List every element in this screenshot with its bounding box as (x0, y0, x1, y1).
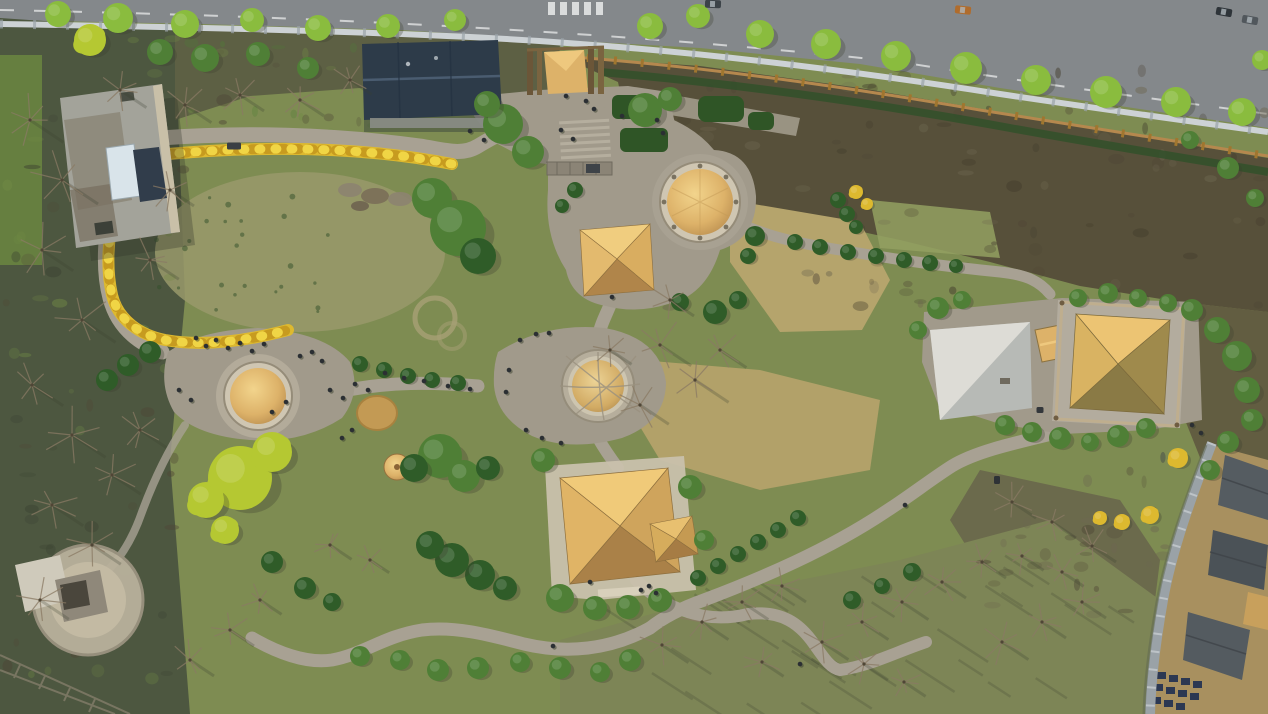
ground-speckle (837, 148, 847, 153)
person-dot (584, 99, 589, 104)
rooftop-unit (94, 221, 113, 235)
bare-trunk (820, 640, 823, 643)
ground-speckle (919, 124, 929, 133)
exhibition-hall-dark-roof (362, 40, 504, 132)
ground-speckle (1030, 227, 1037, 239)
ground-speckle (48, 115, 57, 123)
tree-highlight (516, 140, 530, 154)
person-dot (328, 388, 333, 393)
ground-speckle (899, 288, 913, 296)
tree-highlight (216, 454, 245, 483)
tree-highlight (815, 33, 829, 47)
tree-highlight (1203, 463, 1212, 472)
bare-trunk (40, 248, 43, 251)
person-dot (1199, 431, 1204, 436)
ground-speckle (158, 611, 167, 619)
tree-highlight (426, 374, 433, 381)
ground-speckle (91, 664, 104, 677)
bare-trunk (900, 600, 903, 603)
tree-highlight (452, 464, 466, 478)
person-dot (547, 331, 552, 336)
weed-dot (225, 202, 231, 208)
tree-highlight (378, 364, 385, 371)
ground-speckle (962, 159, 976, 166)
tree-highlight (1237, 380, 1249, 392)
ground-speckle (1111, 543, 1117, 554)
bare-trunk (860, 620, 863, 623)
weed-dot (239, 219, 243, 223)
person-dot (262, 342, 267, 347)
person-dot (353, 382, 358, 387)
bare-trunk (608, 348, 611, 351)
bare-branch (330, 545, 331, 558)
ground-speckle (27, 137, 44, 142)
person-dot (610, 295, 615, 300)
tree-highlight (954, 56, 968, 70)
ground-speckle (19, 444, 31, 449)
person-dot (482, 138, 487, 143)
ground-speckle (290, 110, 297, 119)
ground-speckle (1015, 534, 1026, 539)
tree-highlight (452, 377, 459, 384)
person-dot (540, 436, 545, 441)
person-dot (639, 588, 644, 593)
bare-trunk (188, 658, 191, 661)
person-dot (238, 341, 243, 346)
ground-speckle (11, 251, 20, 262)
ground-speckle (1032, 143, 1039, 152)
tree-highlight (789, 236, 796, 243)
ground-speckle (302, 114, 309, 123)
tree-highlight (697, 533, 706, 542)
ground-speckle (25, 514, 39, 524)
tree-highlight (1071, 291, 1079, 299)
bare-trunk (1040, 620, 1043, 623)
weed-dot (157, 285, 161, 289)
person-dot (310, 350, 315, 355)
tree-highlight (107, 7, 121, 21)
tree-highlight (706, 303, 717, 314)
tree-highlight (772, 524, 779, 531)
bare-trunk (638, 403, 641, 406)
tree-highlight (195, 48, 208, 61)
ground-speckle (1086, 223, 1094, 227)
weed-dot (313, 281, 316, 284)
ground-speckle (356, 117, 361, 127)
ground-speckle (28, 671, 35, 678)
bare-trunk (660, 643, 663, 646)
ground-speckle (1083, 475, 1092, 487)
ground-speckle (1135, 87, 1147, 94)
person-dot (468, 129, 473, 134)
ground-speckle (991, 241, 997, 245)
bare-trunk (168, 188, 171, 191)
ground-speckle (1146, 561, 1153, 567)
ground-speckle (128, 37, 139, 43)
tree-highlight (300, 60, 310, 70)
bare-trunk (1080, 600, 1083, 603)
bare-trunk (183, 103, 186, 106)
person-dot (340, 436, 345, 441)
ground-speckle (813, 273, 820, 284)
tree-highlight (175, 13, 188, 26)
bare-branch (315, 544, 330, 545)
person-dot (270, 410, 275, 415)
ground-speckle (2, 180, 12, 191)
bare-trunk (1020, 554, 1023, 557)
person-dot (524, 428, 529, 433)
tree-highlight (1184, 302, 1194, 312)
ground-speckle (32, 295, 48, 301)
tree-highlight (48, 4, 60, 16)
person-dot (571, 137, 576, 142)
tree-highlight (1171, 451, 1180, 460)
tree-highlight (689, 7, 700, 18)
tree-highlight (470, 660, 480, 670)
ground-speckle (1118, 609, 1133, 614)
tree-highlight (1226, 345, 1240, 359)
ground-speckle (1233, 217, 1241, 223)
person-dot (320, 359, 325, 364)
tree-highlight (692, 572, 699, 579)
weed-dot (219, 283, 224, 288)
tree-highlight (496, 579, 507, 590)
tree-highlight (640, 16, 652, 28)
person-dot (341, 396, 346, 401)
stone-platform-east (930, 322, 1032, 420)
tree-highlight (420, 535, 433, 548)
tree-highlight (1220, 434, 1230, 444)
ground-speckle (878, 220, 891, 225)
ground-speckle (272, 63, 279, 68)
ground-speckle (1094, 586, 1099, 592)
tree-highlight (832, 194, 839, 201)
person-dot (366, 388, 371, 393)
ground-speckle (19, 472, 36, 477)
ground-speckle (903, 281, 912, 287)
ground-speckle (862, 84, 876, 89)
tree-highlight (750, 24, 763, 37)
haystack-mound (357, 396, 397, 430)
tree-highlight (1025, 425, 1034, 434)
ground-speckle (1040, 548, 1051, 560)
bare-trunk (50, 503, 53, 506)
ground-speckle (1000, 539, 1006, 547)
person-dot (177, 388, 182, 393)
ground-speckle (1133, 228, 1149, 237)
ground-speckle (1169, 160, 1177, 167)
person-dot (446, 384, 451, 389)
ground-speckle (866, 121, 873, 129)
tree-highlight (998, 418, 1007, 427)
car (705, 0, 721, 8)
ground-speckle (826, 271, 833, 277)
car-windshield (960, 7, 966, 13)
tree-highlight (1207, 320, 1219, 332)
ground-speckle (147, 69, 162, 78)
person-dot (507, 368, 512, 373)
ground-speckle (937, 122, 952, 127)
tree-highlight (325, 595, 333, 603)
visitor-building-flat-roof (60, 84, 195, 261)
tree-highlight (1095, 513, 1101, 519)
tree-highlight (1025, 69, 1039, 83)
tree-highlight (586, 599, 597, 610)
park-aerial-view (0, 0, 1268, 714)
ground-speckle (1018, 220, 1027, 227)
bare-trunk (368, 558, 371, 561)
ground-speckle (219, 120, 227, 125)
bare-trunk (118, 88, 121, 91)
tree-highlight (712, 560, 719, 567)
person-dot (620, 114, 625, 119)
weed-dot (289, 194, 295, 200)
tree-highlight (249, 45, 260, 56)
ground-speckle (904, 208, 918, 217)
tree-highlight (792, 512, 799, 519)
weed-dot (288, 263, 294, 269)
central-house-annex (650, 516, 698, 562)
bare-branch (230, 630, 231, 645)
ground-speckle (832, 140, 841, 145)
car (955, 5, 972, 15)
tree-highlight (120, 357, 130, 367)
ground-speckle (1080, 552, 1092, 556)
ground-speckle (1055, 67, 1061, 78)
bare-trunk (298, 98, 301, 101)
tree-highlight (1165, 91, 1179, 105)
bare-trunk (1010, 500, 1013, 503)
person-dot (518, 338, 523, 343)
bare-trunk (718, 348, 721, 351)
bare-trunk (38, 598, 41, 601)
bare-trunk (258, 598, 261, 601)
ground-speckle (801, 269, 814, 276)
ground-speckle (128, 502, 137, 510)
tree-highlight (78, 28, 92, 42)
ground-speckle (1128, 213, 1135, 217)
bare-trunk (658, 343, 661, 346)
weed-dot (234, 243, 238, 247)
ground-speckle (220, 41, 225, 47)
ground-speckle (1006, 180, 1022, 192)
bare-trunk (228, 628, 231, 631)
person-dot (214, 338, 219, 343)
bare-trunk (60, 178, 63, 181)
tree-highlight (1116, 516, 1123, 523)
tree-highlight (870, 250, 877, 257)
tree-highlight (681, 478, 692, 489)
weed-dot (315, 305, 320, 310)
person-dot (534, 332, 539, 337)
bare-trunk (902, 680, 905, 683)
person-dot (559, 441, 564, 446)
person-dot (903, 503, 908, 508)
ground-speckle (271, 45, 285, 49)
ground-speckle (24, 165, 41, 169)
tree-highlight (569, 184, 576, 191)
tree-highlight (215, 520, 228, 533)
person-dot (654, 591, 659, 596)
person-dot (564, 94, 569, 99)
person-dot (1190, 423, 1195, 428)
ground-speckle (14, 639, 20, 647)
tree-highlight (841, 208, 848, 215)
person-dot (592, 107, 597, 112)
bare-trunk (693, 378, 696, 381)
tree-highlight (1101, 286, 1110, 295)
weed-dot (243, 284, 247, 288)
tree-highlight (851, 222, 857, 228)
ground-speckle (1126, 467, 1133, 476)
tree-highlight (930, 300, 940, 310)
ground-speckle (1023, 517, 1032, 528)
ground-speckle (46, 544, 56, 555)
tree-highlight (951, 261, 957, 267)
tree-highlight (243, 11, 254, 22)
ground-speckle (86, 399, 93, 411)
bare-trunk (30, 383, 33, 386)
ground-speckle (1253, 176, 1267, 182)
bare-trunk (700, 620, 703, 623)
ground-speckle (1141, 475, 1146, 488)
person-dot (468, 387, 473, 392)
tree-highlight (1220, 160, 1230, 170)
ground-speckle (145, 673, 158, 685)
tree-highlight (437, 207, 462, 232)
pergola-bench (547, 162, 612, 175)
person-dot (402, 376, 407, 381)
tree-highlight (354, 358, 361, 365)
tree-highlight (845, 593, 853, 601)
ground-speckle (918, 300, 924, 308)
tree-highlight (661, 90, 672, 101)
tree-highlight (552, 660, 562, 670)
ground-speckle (141, 407, 155, 417)
tree-highlight (430, 662, 440, 672)
tree-highlight (742, 250, 749, 257)
bare-trunk (940, 580, 943, 583)
ground-speckle (1150, 526, 1159, 532)
bare-branch (901, 602, 902, 622)
tree-highlight (1143, 508, 1151, 516)
tree-highlight (1052, 430, 1062, 440)
bare-trunk (1060, 570, 1063, 573)
bare-trunk (862, 662, 865, 665)
tree-highlight (924, 257, 931, 264)
tree-highlight (1248, 191, 1256, 199)
ground-speckle (982, 219, 998, 224)
ground-speckle (988, 580, 1000, 586)
ground-speckle (45, 267, 61, 278)
person-dot (661, 131, 666, 136)
large-pyramid-house-central (545, 456, 698, 600)
tree-highlight (885, 45, 899, 59)
person-dot (194, 336, 199, 341)
tree-highlight (732, 548, 739, 555)
weed-dot (274, 290, 277, 293)
person-dot (647, 584, 652, 589)
tree-highlight (863, 200, 868, 205)
ground-speckle (167, 471, 175, 477)
bare-trunk (238, 93, 241, 96)
ground-speckle (853, 301, 869, 311)
tree-highlight (876, 580, 883, 587)
tree-highlight (748, 229, 757, 238)
ground-speckle (47, 202, 59, 213)
bare-trunk (328, 543, 331, 546)
round-pit-house-west (216, 354, 300, 438)
weed-dot (326, 233, 330, 237)
ground-speckle (52, 299, 67, 308)
tree-highlight (622, 652, 632, 662)
ground-speckle (984, 245, 996, 253)
weed-dot (316, 310, 319, 313)
tree-highlight (477, 94, 489, 106)
ground-speckle (45, 667, 52, 676)
bare-trunk (1050, 520, 1053, 523)
tree-highlight (99, 372, 109, 382)
ground-speckle (862, 154, 873, 159)
person-dot (298, 354, 303, 359)
person-dot (588, 580, 593, 585)
car-windshield (1221, 9, 1227, 16)
weed-dot (177, 286, 180, 289)
tree-highlight (752, 536, 759, 543)
car-windshield (710, 1, 715, 7)
tree-highlight (1083, 435, 1091, 443)
bare-trunk (28, 118, 31, 121)
ground-speckle (1256, 217, 1266, 226)
bare-branch (92, 545, 93, 567)
tree-highlight (1232, 102, 1245, 115)
tree-highlight (842, 246, 849, 253)
ground-speckle (745, 141, 761, 150)
ground-speckle (795, 185, 810, 192)
tree-highlight (465, 243, 481, 259)
hall-porch (370, 118, 496, 128)
ground-speckle (1065, 107, 1073, 115)
tree-highlight (851, 187, 857, 193)
person-dot (798, 662, 803, 667)
tree-highlight (193, 487, 209, 503)
ground-speckle (1082, 525, 1095, 535)
ground-speckle (1204, 175, 1216, 182)
thatched-entrance-gate (527, 46, 604, 95)
person-dot (504, 390, 509, 395)
person-dot (250, 349, 255, 354)
tree-highlight (731, 293, 739, 301)
bare-trunk (80, 318, 83, 321)
bare-trunk (110, 473, 113, 476)
tree-highlight (814, 241, 821, 248)
bare-trunk (980, 560, 983, 563)
ground-speckle (869, 281, 879, 294)
pyramid-pit-house-north (580, 224, 654, 296)
tree-highlight (1244, 412, 1254, 422)
bare-branch (610, 350, 611, 367)
ground-speckle (324, 113, 334, 121)
bare-trunk (760, 660, 763, 663)
bare-trunk (70, 433, 73, 436)
weed-dot (233, 293, 237, 297)
bare-trunk (138, 428, 141, 431)
person-dot (383, 371, 388, 376)
person-dot (350, 428, 355, 433)
tree-highlight (142, 344, 152, 354)
bare-trunk (148, 258, 151, 261)
weed-dot (214, 308, 218, 312)
